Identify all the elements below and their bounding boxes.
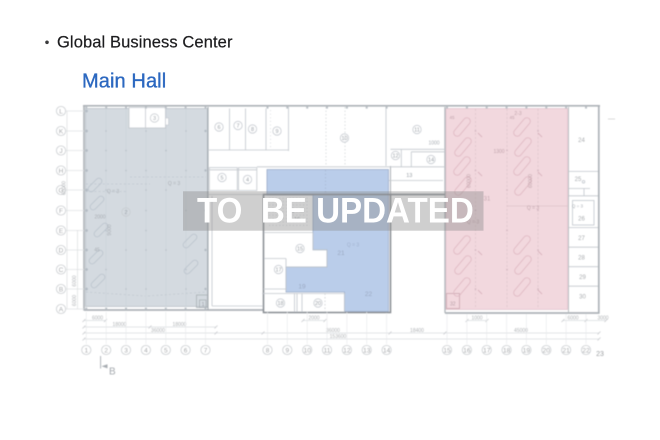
svg-text:16: 16 <box>463 347 471 354</box>
svg-text:21: 21 <box>337 250 345 257</box>
svg-text:6000: 6000 <box>567 316 578 322</box>
svg-text:13: 13 <box>406 173 412 179</box>
svg-text:14: 14 <box>383 347 391 354</box>
svg-text:Q = 3: Q = 3 <box>168 181 181 187</box>
svg-text:5: 5 <box>220 176 223 182</box>
svg-text:J: J <box>59 148 62 155</box>
svg-text:Q = 3: Q = 3 <box>347 243 360 249</box>
svg-text:12: 12 <box>392 154 398 160</box>
svg-text:14: 14 <box>428 158 434 164</box>
svg-text:11: 11 <box>324 347 331 354</box>
svg-text:9: 9 <box>275 129 278 135</box>
svg-text:1: 1 <box>201 302 204 308</box>
svg-text:17: 17 <box>483 347 491 354</box>
svg-text:153600: 153600 <box>330 334 347 340</box>
svg-text:26: 26 <box>578 216 585 222</box>
svg-text:15: 15 <box>297 247 303 253</box>
svg-text:1300: 1300 <box>493 149 504 155</box>
svg-text:2: 2 <box>104 347 108 354</box>
svg-text:Main Hall: Main Hall <box>82 71 166 93</box>
svg-text:4: 4 <box>144 347 148 354</box>
svg-text:19: 19 <box>523 347 531 354</box>
svg-text:18000: 18000 <box>173 322 187 328</box>
svg-text:24: 24 <box>578 138 585 144</box>
svg-text:Global Business Center: Global Business Center <box>57 34 233 52</box>
svg-text:2-3: 2-3 <box>514 111 521 117</box>
svg-text:6000: 6000 <box>72 295 78 306</box>
svg-text:18: 18 <box>277 301 283 307</box>
svg-text:31: 31 <box>484 197 491 203</box>
svg-text:20: 20 <box>315 301 321 307</box>
svg-text:3000: 3000 <box>597 316 608 322</box>
svg-text:2000: 2000 <box>308 316 319 322</box>
svg-text:36000: 36000 <box>326 328 340 334</box>
svg-text:6000: 6000 <box>72 275 78 286</box>
svg-text:9000: 9000 <box>107 224 113 235</box>
svg-text:29: 29 <box>579 275 586 281</box>
svg-text:27: 27 <box>578 236 585 242</box>
svg-text:7: 7 <box>204 347 208 354</box>
svg-text:8: 8 <box>251 127 254 133</box>
svg-text:E: E <box>59 228 64 235</box>
svg-text:1000: 1000 <box>471 316 482 322</box>
svg-text:B: B <box>59 286 63 293</box>
svg-text:9: 9 <box>285 347 289 354</box>
svg-text:Q = 3: Q = 3 <box>107 189 120 195</box>
svg-text:1000: 1000 <box>428 140 439 146</box>
svg-text:F: F <box>59 208 63 215</box>
svg-text:2: 2 <box>124 210 127 216</box>
svg-text:3: 3 <box>124 347 128 354</box>
svg-text:45000: 45000 <box>514 328 528 334</box>
svg-text:L: L <box>59 108 63 115</box>
svg-text:36000: 36000 <box>151 328 165 334</box>
svg-text:3: 3 <box>153 116 156 122</box>
svg-text:45: 45 <box>94 248 100 254</box>
svg-text:10: 10 <box>304 347 312 354</box>
svg-text:18: 18 <box>503 347 511 354</box>
svg-text:2000: 2000 <box>94 215 105 221</box>
svg-text:4: 4 <box>246 178 249 184</box>
svg-text:60000: 60000 <box>467 174 473 188</box>
svg-text:19: 19 <box>298 284 306 291</box>
svg-text:32: 32 <box>450 302 456 308</box>
svg-text:6: 6 <box>217 125 220 131</box>
svg-text:A: A <box>59 306 64 313</box>
svg-text:6000: 6000 <box>92 316 103 322</box>
svg-text:22: 22 <box>365 291 373 298</box>
svg-text:D: D <box>59 247 64 254</box>
svg-text:13: 13 <box>363 347 371 354</box>
svg-text:23: 23 <box>596 351 604 358</box>
svg-text:Q = 3: Q = 3 <box>527 206 540 212</box>
svg-text:60000: 60000 <box>528 174 534 188</box>
svg-text:22: 22 <box>582 347 590 354</box>
svg-text:11: 11 <box>414 128 420 134</box>
svg-text:12: 12 <box>343 347 351 354</box>
svg-text:15: 15 <box>443 347 451 354</box>
svg-text:28: 28 <box>578 255 585 261</box>
svg-text:C: C <box>59 267 64 274</box>
svg-text:17: 17 <box>275 268 281 274</box>
svg-text:TO BE UPDATED: TO BE UPDATED <box>197 191 474 230</box>
svg-text:18000: 18000 <box>113 322 127 328</box>
svg-text:Q = 3: Q = 3 <box>572 204 584 209</box>
svg-text:45: 45 <box>449 115 455 120</box>
svg-text:25: 25 <box>575 177 582 183</box>
svg-text:K: K <box>59 128 64 135</box>
svg-text:30: 30 <box>579 295 586 301</box>
svg-text:H: H <box>59 168 64 175</box>
svg-text:1: 1 <box>84 347 88 354</box>
svg-text:60000: 60000 <box>62 181 68 195</box>
svg-text:20: 20 <box>543 347 551 354</box>
svg-text:10: 10 <box>341 136 347 142</box>
svg-text:6: 6 <box>184 347 188 354</box>
svg-text:B: B <box>109 367 116 378</box>
svg-text:5: 5 <box>164 347 168 354</box>
svg-text:7: 7 <box>236 124 239 130</box>
svg-text:18400: 18400 <box>410 328 424 334</box>
svg-text:8: 8 <box>266 347 270 354</box>
svg-text:21: 21 <box>562 347 570 354</box>
